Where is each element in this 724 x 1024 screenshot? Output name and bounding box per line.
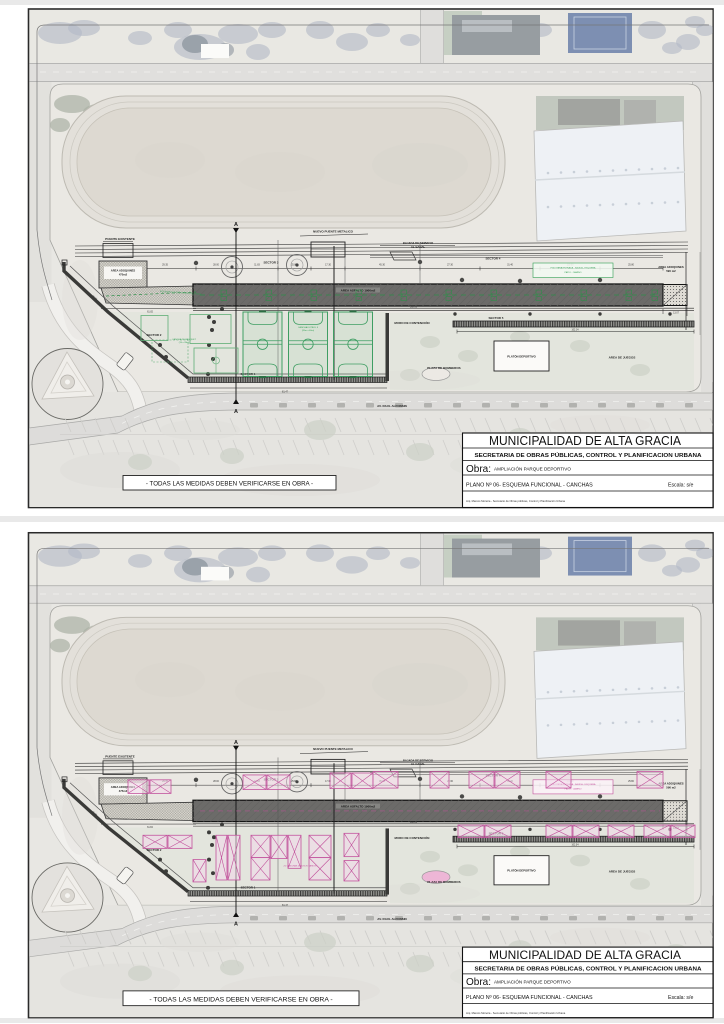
svg-text:A: A [234, 409, 238, 415]
svg-text:A: A [234, 921, 238, 927]
svg-text:31.40: 31.40 [507, 265, 513, 267]
svg-text:Arq. Marcos Moreira - Secretar: Arq. Marcos Moreira - Secretario de Obra… [466, 499, 566, 503]
svg-text:AREA ASFALTO 1900m2: AREA ASFALTO 1900m2 [341, 289, 376, 293]
svg-text:PUENTE EXISTENTE: PUENTE EXISTENTE [105, 754, 134, 758]
svg-text:PLAZA DE BOMBEROS: PLAZA DE BOMBEROS [427, 366, 460, 370]
svg-text:AV. RAUL ALFONSIN: AV. RAUL ALFONSIN [377, 404, 407, 408]
svg-text:590 m2: 590 m2 [666, 269, 676, 273]
svg-text:475m2: 475m2 [119, 789, 128, 793]
svg-text:502.36: 502.36 [410, 307, 418, 309]
svg-text:Escala: s/e: Escala: s/e [668, 995, 693, 1001]
svg-text:SECTOR 4: SECTOR 4 [486, 257, 501, 261]
svg-text:PLANO Nº 06- ESQUEMA FUNCIONAL: PLANO Nº 06- ESQUEMA FUNCIONAL - CANCHAS [466, 995, 593, 1001]
svg-text:BAJADA DE SERVICIO: BAJADA DE SERVICIO [403, 758, 434, 762]
svg-text:502.36: 502.36 [410, 822, 418, 824]
svg-text:SECRETARIA DE OBRAS PÚBLICAS,: SECRETARIA DE OBRAS PÚBLICAS, CONTROL Y … [474, 965, 701, 972]
svg-text:13.07: 13.07 [673, 313, 679, 315]
svg-text:PLATÓN DEPORTIVO: PLATÓN DEPORTIVO [507, 354, 536, 359]
svg-text:PISO PARA ENTRADA - SALIDA - E: PISO PARA ENTRADA - SALIDA - ESQUEMA [551, 267, 596, 270]
svg-text:Obra:: Obra: [466, 464, 491, 475]
svg-text:Escala: s/e: Escala: s/e [668, 483, 693, 489]
svg-text:590 m2: 590 m2 [666, 785, 676, 789]
svg-text:CANCHA DE BASQUET: CANCHA DE BASQUET [172, 338, 196, 341]
svg-text:AREA ASFALTO 1900m2: AREA ASFALTO 1900m2 [341, 804, 376, 808]
svg-text:PUENTE EXISTENTE: PUENTE EXISTENTE [105, 237, 135, 241]
svg-text:- TODAS LAS MEDIDAS DEBEN VERI: - TODAS LAS MEDIDAS DEBEN VERIFICARSE EN… [149, 996, 332, 1003]
svg-text:27.30: 27.30 [447, 265, 453, 267]
svg-text:SECTOR 2: SECTOR 2 [147, 333, 162, 337]
svg-text:MURO DE CONTENCIÓN: MURO DE CONTENCIÓN [394, 320, 429, 325]
svg-text:29.35: 29.35 [162, 265, 168, 267]
svg-text:Arq. Marcos Moreira - Secretar: Arq. Marcos Moreira - Secretario de Obra… [466, 1011, 566, 1015]
svg-text:NUEVO PUENTE METALICO: NUEVO PUENTE METALICO [313, 747, 353, 751]
svg-text:81.47: 81.47 [282, 903, 289, 906]
svg-text:PLAZA DE BOMBEROS: PLAZA DE BOMBEROS [427, 879, 460, 883]
svg-text:102.34: 102.34 [572, 844, 580, 846]
svg-text:CANCHA FUTBOL 5: CANCHA FUTBOL 5 [298, 326, 319, 329]
svg-text:28.00: 28.00 [213, 781, 219, 783]
svg-text:MUNICIPALIDAD DE ALTA GRACIA: MUNICIPALIDAD DE ALTA GRACIA [489, 434, 682, 448]
svg-text:AREA ADOQUINES: AREA ADOQUINES [111, 269, 136, 273]
svg-text:25.80: 25.80 [628, 781, 634, 783]
svg-text:SECTOR 5: SECTOR 5 [489, 316, 504, 320]
svg-text:- TODAS LAS MEDIDAS DEBEN VERI: - TODAS LAS MEDIDAS DEBEN VERIFICARSE EN… [146, 481, 313, 488]
svg-text:SECTOR 3: SECTOR 3 [264, 261, 279, 265]
svg-text:MURO DE CONTENCIÓN: MURO DE CONTENCIÓN [395, 835, 430, 840]
svg-text:102.34: 102.34 [571, 330, 579, 332]
svg-text:81.47: 81.47 [282, 391, 289, 394]
svg-text:AREA DE JUEGOS: AREA DE JUEGOS [609, 869, 636, 873]
svg-text:61.82: 61.82 [147, 312, 153, 314]
svg-text:AMPLIACIÓN PARQUE DEPORTIVO: AMPLIACIÓN PARQUE DEPORTIVO [494, 978, 571, 984]
svg-text:A: A [234, 222, 238, 228]
svg-text:45.30: 45.30 [379, 265, 385, 267]
svg-text:MUNICIPALIDAD DE ALTA GRACIA: MUNICIPALIDAD DE ALTA GRACIA [489, 947, 682, 961]
svg-text:25 CANCHAS DE USOS VARIOS: 25 CANCHAS DE USOS VARIOS [284, 864, 317, 867]
svg-text:PATIO - CAMINO: PATIO - CAMINO [565, 271, 582, 274]
svg-text:(20m x 40m): (20m x 40m) [302, 330, 315, 332]
svg-text:A: A [234, 739, 238, 745]
svg-text:AREA DE JUEGOS: AREA DE JUEGOS [609, 356, 636, 360]
svg-text:17.30: 17.30 [325, 265, 331, 267]
svg-text:25.80: 25.80 [628, 265, 634, 267]
svg-text:AMPLIACIÓN PARQUE DEPORTIVO: AMPLIACIÓN PARQUE DEPORTIVO [494, 466, 571, 472]
svg-text:AV. RAUL ALFONSIN: AV. RAUL ALFONSIN [377, 916, 406, 920]
svg-text:11.83: 11.83 [254, 265, 260, 267]
svg-text:SECRETARIA DE OBRAS PÚBLICAS,: SECRETARIA DE OBRAS PÚBLICAS, CONTROL Y … [475, 452, 702, 459]
svg-text:PLANO Nº 06- ESQUEMA FUNCIONAL: PLANO Nº 06- ESQUEMA FUNCIONAL - CANCHAS [466, 483, 593, 489]
svg-text:475m2: 475m2 [119, 273, 128, 277]
svg-text:28.00: 28.00 [213, 265, 219, 267]
svg-text:NUEVO PUENTE METALICO: NUEVO PUENTE METALICO [313, 230, 354, 234]
svg-text:SECTOR 1: SECTOR 1 [241, 885, 256, 889]
svg-text:Obra:: Obra: [466, 977, 491, 988]
svg-text:61.82: 61.82 [147, 826, 153, 828]
